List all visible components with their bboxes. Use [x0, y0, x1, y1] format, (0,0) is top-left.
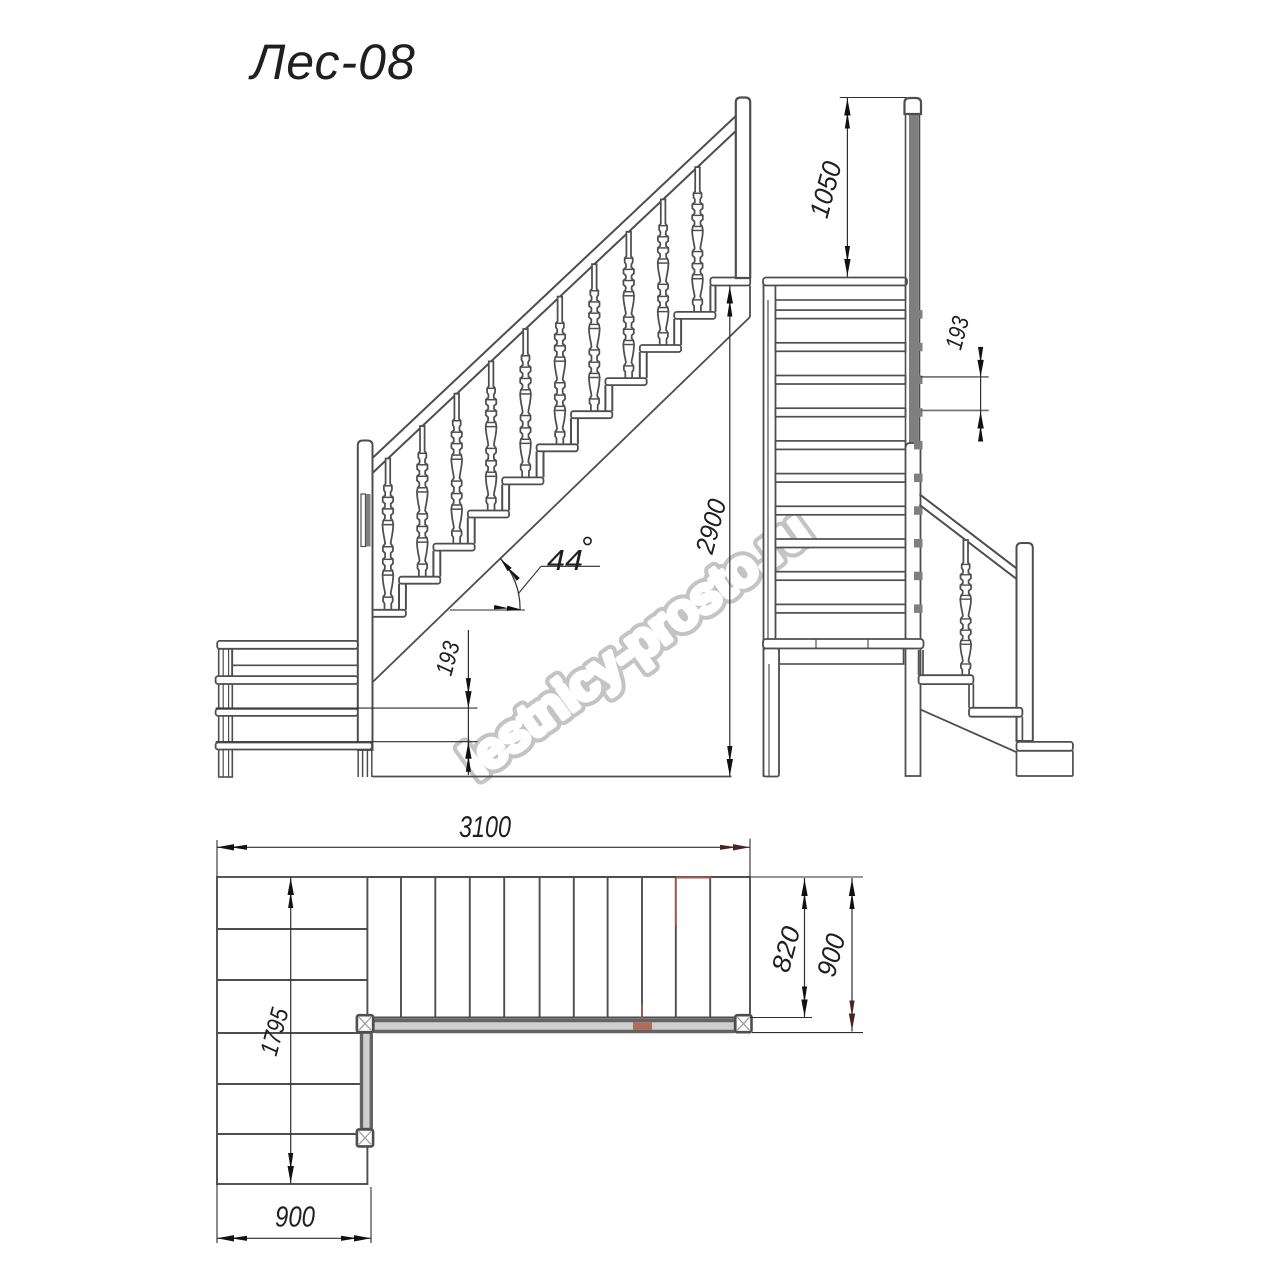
svg-text:900: 900 [275, 1202, 315, 1234]
svg-text:Лес-08: Лес-08 [248, 34, 416, 90]
svg-text:44: 44 [547, 545, 583, 577]
svg-text:3100: 3100 [459, 811, 511, 844]
